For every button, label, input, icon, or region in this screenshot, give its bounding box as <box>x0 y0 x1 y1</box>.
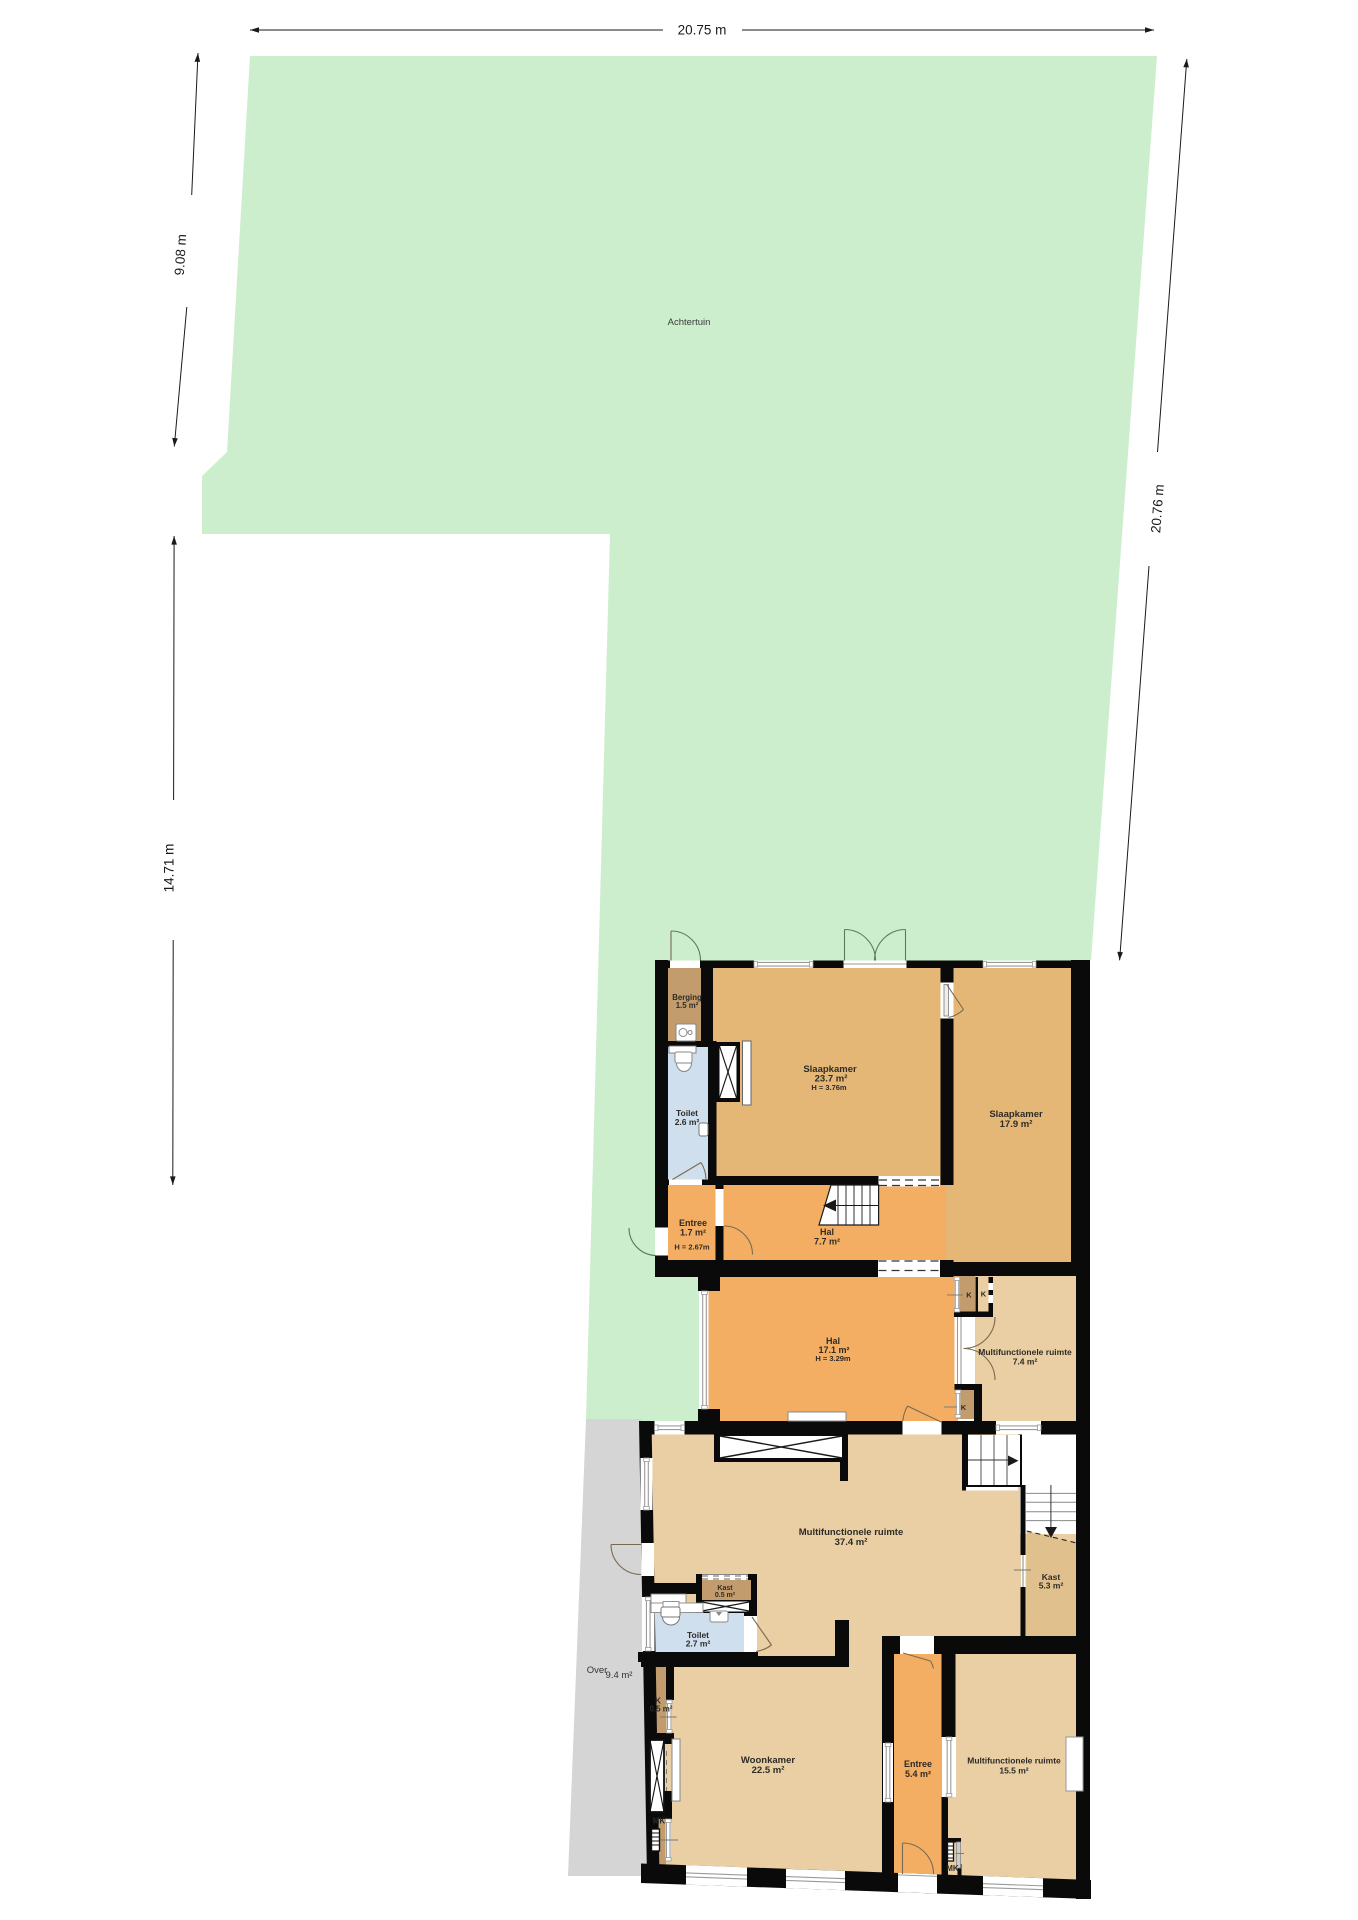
svg-text:K: K <box>981 1290 987 1299</box>
svg-text:MK: MK <box>653 1817 666 1826</box>
svg-text:1.5 m²: 1.5 m² <box>676 1001 699 1010</box>
svg-text:9.08 m: 9.08 m <box>172 234 189 276</box>
svg-text:5.4 m²: 5.4 m² <box>905 1769 931 1779</box>
svg-text:Entree: Entree <box>904 1759 932 1769</box>
svg-text:7.7 m²: 7.7 m² <box>814 1237 840 1247</box>
svg-text:K: K <box>961 1403 967 1412</box>
svg-text:7.4 m²: 7.4 m² <box>1013 1357 1038 1367</box>
svg-text:H = 3.29m: H = 3.29m <box>815 1354 851 1363</box>
svg-text:2.6 m²: 2.6 m² <box>675 1117 700 1127</box>
svg-text:0.5 m²: 0.5 m² <box>715 1592 736 1599</box>
svg-text:Kast: Kast <box>717 1585 733 1592</box>
svg-text:14.71 m: 14.71 m <box>162 844 177 893</box>
svg-text:15.5 m²: 15.5 m² <box>999 1766 1028 1776</box>
svg-text:22.5 m²: 22.5 m² <box>752 1765 785 1776</box>
svg-text:20.75 m: 20.75 m <box>678 23 727 38</box>
svg-text:Multifunctionele ruimte: Multifunctionele ruimte <box>978 1347 1072 1357</box>
svg-text:9.4 m²: 9.4 m² <box>606 1670 633 1681</box>
svg-text:Achtertuin: Achtertuin <box>668 317 711 328</box>
svg-text:K: K <box>966 1291 972 1300</box>
svg-text:H = 3.76m: H = 3.76m <box>811 1083 847 1092</box>
svg-text:17.9 m²: 17.9 m² <box>1000 1119 1033 1130</box>
svg-text:Multifunctionele ruimte: Multifunctionele ruimte <box>967 1756 1061 1766</box>
svg-text:1.7 m²: 1.7 m² <box>680 1228 706 1238</box>
svg-text:H = 2.67m: H = 2.67m <box>674 1243 710 1252</box>
svg-text:Entree: Entree <box>679 1218 707 1228</box>
svg-text:Hal: Hal <box>820 1227 834 1237</box>
svg-text:Over: Over <box>587 1665 608 1676</box>
svg-text:MK: MK <box>946 1864 959 1873</box>
svg-text:5.3 m²: 5.3 m² <box>1039 1581 1064 1591</box>
svg-text:0.5 m²: 0.5 m² <box>649 1705 672 1714</box>
svg-text:2.7 m²: 2.7 m² <box>686 1639 711 1649</box>
svg-text:37.4 m²: 37.4 m² <box>835 1537 868 1548</box>
